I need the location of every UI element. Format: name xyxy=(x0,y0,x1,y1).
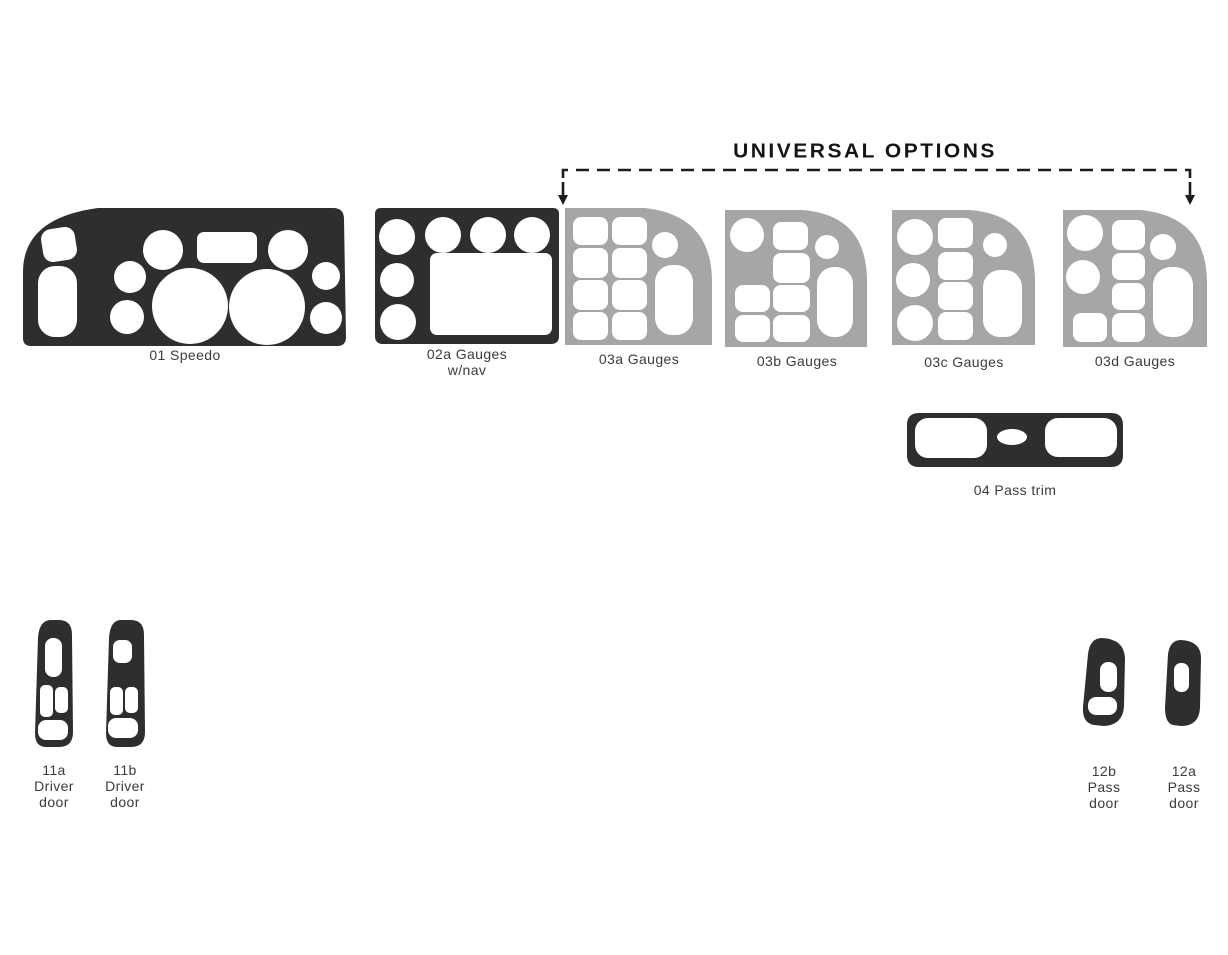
gauges-03c-label: 03c Gauges xyxy=(924,354,1004,370)
pass-trim-panel xyxy=(905,411,1125,469)
dashed-bracket-line xyxy=(563,170,1190,178)
gauges-03c-cutouts xyxy=(896,218,1022,341)
pass-door-12a-panel xyxy=(1163,638,1205,730)
universal-options-bracket xyxy=(555,140,1215,212)
gauges-03b-label: 03b Gauges xyxy=(757,353,837,369)
down-arrow-left-head xyxy=(558,195,568,205)
pass-door-12b-label: 12b Pass door xyxy=(1088,763,1121,811)
pass-door-12b-panel xyxy=(1080,636,1128,730)
piece-03b-gauges: 03b Gauges xyxy=(723,206,871,411)
piece-11b-driver-door: 11b Driver door xyxy=(103,618,147,818)
driver-door-11b-label: 11b Driver door xyxy=(105,762,145,810)
pass-door-12a-label: 12a Pass door xyxy=(1168,763,1201,811)
gauges-03a-panel xyxy=(563,206,715,348)
driver-door-11b-panel xyxy=(103,618,147,750)
driver-door-11a-label: 11a Driver door xyxy=(34,762,74,810)
piece-02a-gauges-w-nav: 02a Gauges w/nav xyxy=(373,206,561,406)
dash-kit-diagram: UNIVERSAL OPTIONS xyxy=(0,0,1228,955)
gauges-02a-panel xyxy=(373,206,561,346)
gauges-03d-panel xyxy=(1061,206,1209,350)
piece-11a-driver-door: 11a Driver door xyxy=(33,618,75,818)
piece-04-pass-trim: 04 Pass trim xyxy=(905,411,1125,531)
pass-trim-label: 04 Pass trim xyxy=(974,482,1057,498)
gauges-02a-label: 02a Gauges w/nav xyxy=(427,346,507,378)
gauges-03d-label: 03d Gauges xyxy=(1095,353,1175,369)
speedo-panel xyxy=(20,204,350,350)
down-arrow-right-head xyxy=(1185,195,1195,205)
piece-12b-pass-door: 12b Pass door xyxy=(1080,636,1128,826)
piece-01-speedo: 01 Speedo xyxy=(20,204,350,414)
gauges-03c-panel xyxy=(890,206,1038,348)
gauges-03b-panel xyxy=(723,206,871,350)
piece-03d-gauges: 03d Gauges xyxy=(1061,206,1209,411)
speedo-label: 01 Speedo xyxy=(149,347,220,363)
pass-door-12a-cutouts xyxy=(1174,663,1189,692)
driver-door-11a-panel xyxy=(33,618,75,750)
piece-03c-gauges: 03c Gauges xyxy=(890,206,1038,411)
piece-12a-pass-door: 12a Pass door xyxy=(1163,638,1205,828)
gauges-03a-label: 03a Gauges xyxy=(599,351,679,367)
piece-03a-gauges: 03a Gauges xyxy=(563,206,715,411)
